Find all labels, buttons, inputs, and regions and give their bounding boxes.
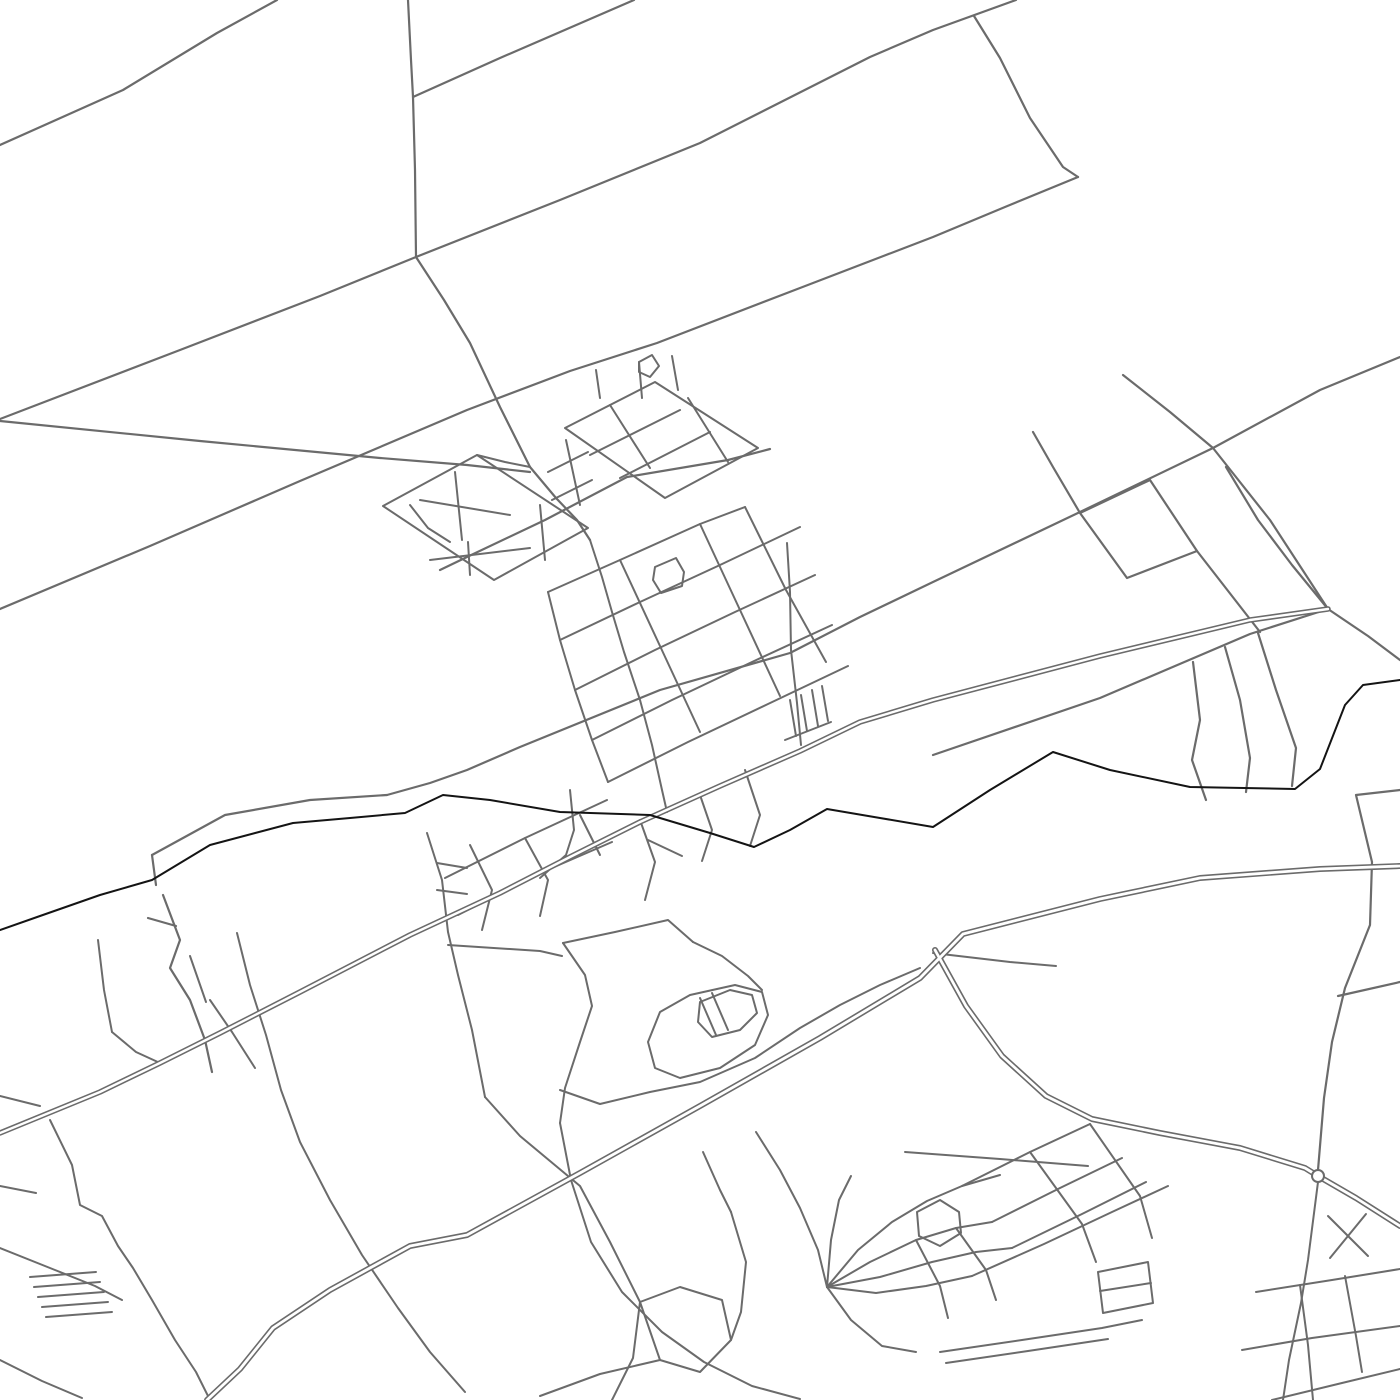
- road-line: [552, 480, 592, 500]
- road-line: [822, 686, 828, 721]
- road-line: [946, 1339, 1108, 1363]
- road-line: [0, 421, 530, 472]
- road-line: [1328, 609, 1400, 660]
- road-line: [935, 950, 1400, 1226]
- road-line: [640, 1287, 731, 1372]
- road-line: [237, 933, 465, 1392]
- road-line: [801, 695, 807, 731]
- road-line: [1318, 790, 1400, 1170]
- road-line: [700, 998, 716, 1035]
- road-line: [163, 895, 212, 1072]
- road-line: [383, 455, 588, 580]
- road-line: [1033, 432, 1080, 513]
- road-line: [693, 942, 762, 990]
- road-line: [0, 0, 1016, 419]
- road-line: [112, 1032, 160, 1063]
- road-line: [1225, 647, 1250, 792]
- road-line: [940, 1320, 1142, 1352]
- road-line: [0, 1186, 36, 1193]
- road-line: [50, 1120, 210, 1400]
- road-line: [962, 1124, 1090, 1186]
- road-line: [98, 940, 112, 1032]
- road-line: [548, 452, 588, 472]
- road-line: [610, 405, 650, 468]
- road-line: [565, 382, 758, 498]
- road-line: [470, 845, 492, 930]
- road-line: [790, 700, 796, 736]
- road-line: [756, 1132, 827, 1287]
- road-line: [745, 770, 760, 846]
- road-line: [0, 680, 1400, 930]
- layer-village-north: [548, 355, 758, 505]
- road-line: [0, 609, 1328, 1133]
- road-line: [1242, 1326, 1400, 1350]
- road-line: [1226, 467, 1328, 609]
- road-line: [152, 795, 387, 855]
- road-line: [672, 356, 678, 390]
- layer-southeast-roads: [827, 1124, 1400, 1400]
- road-line: [712, 993, 728, 1030]
- road-line: [1123, 375, 1328, 609]
- road-line: [1258, 633, 1296, 786]
- road-line: [688, 398, 728, 462]
- road-line: [745, 507, 826, 662]
- layer-southwest-roads: [0, 933, 465, 1400]
- road-line: [38, 1292, 104, 1297]
- street-map-canvas: [0, 0, 1400, 1400]
- road-line: [1345, 1276, 1362, 1372]
- road-line: [700, 795, 712, 861]
- road-line: [956, 1228, 996, 1300]
- road-line: [592, 625, 832, 740]
- road-line: [827, 1287, 916, 1352]
- road-line: [700, 524, 780, 696]
- layer-field-roads: [0, 0, 1400, 1072]
- roundabout-icon: [1312, 1170, 1324, 1182]
- road-line: [827, 1276, 972, 1293]
- road-line: [1272, 1369, 1400, 1400]
- road-line: [1330, 1214, 1366, 1258]
- road-line: [387, 357, 1400, 795]
- road-line: [448, 945, 562, 956]
- road-line: [0, 1096, 40, 1106]
- road-line: [827, 1176, 851, 1287]
- road-line: [648, 840, 682, 856]
- road-line: [1080, 480, 1197, 578]
- road-line: [46, 1312, 112, 1317]
- road-line: [42, 1302, 108, 1307]
- road-line: [933, 953, 1056, 966]
- road-line: [468, 542, 470, 575]
- road-line: [0, 177, 1078, 609]
- road-line: [640, 820, 655, 900]
- road-line: [575, 575, 815, 690]
- road-line: [1100, 1283, 1151, 1291]
- road-line: [437, 890, 467, 894]
- road-line: [972, 1186, 1168, 1276]
- road-line: [0, 0, 277, 145]
- road-line: [812, 690, 818, 726]
- road-line: [1090, 1124, 1152, 1238]
- map-viewport: [0, 0, 1400, 1400]
- road-line: [1012, 1182, 1146, 1248]
- road-line: [639, 355, 659, 377]
- road-line: [590, 410, 680, 455]
- road-line: [974, 16, 1078, 177]
- road-line: [566, 440, 580, 505]
- layer-village-annex: [383, 455, 588, 580]
- road-line: [0, 609, 1328, 1133]
- road-line: [1192, 662, 1206, 800]
- road-line: [190, 956, 206, 1002]
- road-line: [917, 1200, 961, 1246]
- road-line: [540, 505, 545, 560]
- layer-village-central: [548, 507, 848, 861]
- road-line: [905, 1152, 1088, 1166]
- road-line: [916, 1240, 948, 1318]
- road-line: [0, 1360, 82, 1398]
- road-line: [420, 500, 510, 515]
- road-line: [703, 1152, 731, 1212]
- road-line: [731, 1212, 746, 1340]
- road-line: [485, 1097, 640, 1400]
- road-line: [563, 920, 693, 943]
- road-line: [437, 863, 467, 868]
- road-line: [827, 1175, 1000, 1287]
- road-line: [540, 1360, 660, 1396]
- road-line: [608, 666, 848, 782]
- road-line: [596, 370, 600, 398]
- road-line: [1256, 1269, 1400, 1292]
- layer-trunk-road: [0, 609, 1328, 1133]
- layer-stream: [0, 680, 1400, 930]
- road-line: [416, 257, 590, 540]
- road-line: [408, 0, 416, 257]
- layer-stadium: [560, 942, 920, 1104]
- layer-village-river: [427, 790, 693, 1097]
- road-line: [413, 0, 634, 97]
